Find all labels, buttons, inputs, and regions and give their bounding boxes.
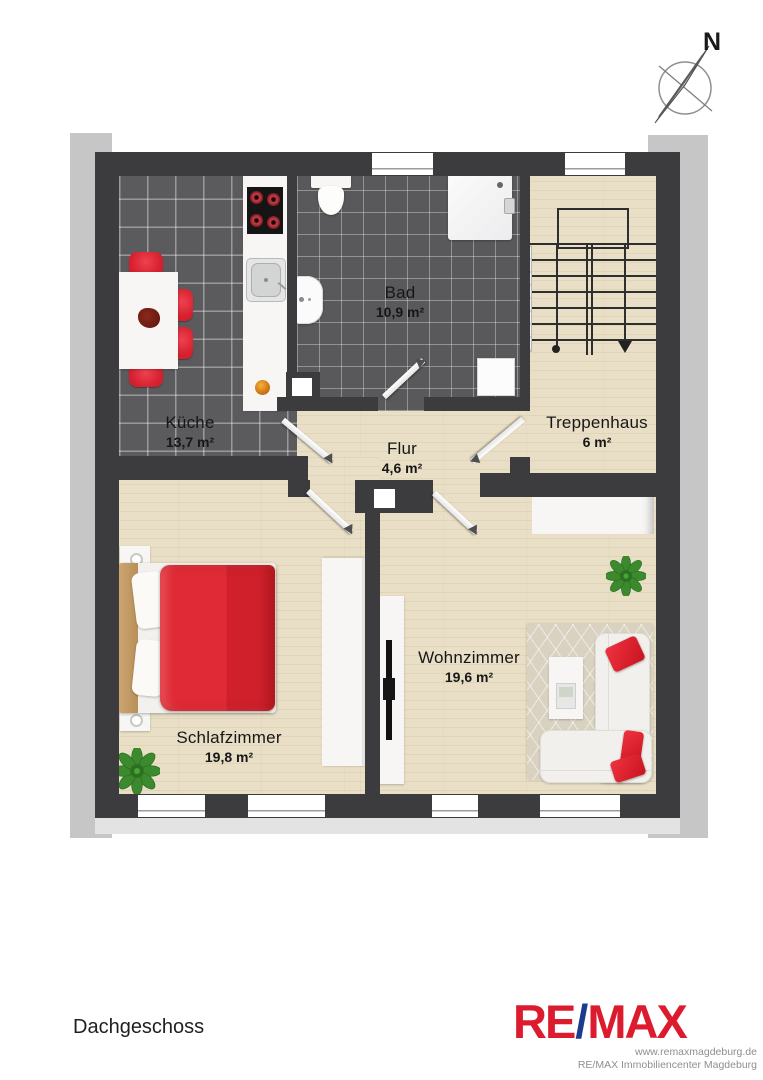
window-wohnzimmer-2 [540, 795, 620, 817]
room-label-bad: Bad10,9 m² [376, 283, 424, 320]
kitchen-bowl [255, 380, 270, 395]
wall-kueche-door-post [277, 457, 287, 480]
stairs-divider [586, 243, 593, 355]
compass-north-label: N [703, 28, 721, 56]
wall-treppenhaus-south [480, 473, 680, 497]
stairs-walkline [556, 243, 558, 349]
washbasin [296, 276, 323, 324]
kitchen-counter [243, 176, 287, 411]
window-schlafzimmer-1 [138, 795, 205, 817]
wall-bad-treppenhaus [520, 152, 530, 411]
window-treppenhaus [565, 153, 625, 175]
room-label-flur: Flur4,6 m² [382, 439, 422, 476]
built-in-closet [532, 494, 654, 534]
roof-strip-bottom [95, 818, 680, 834]
cooktop [247, 187, 283, 234]
chimney-flur-cap [374, 489, 395, 508]
toilet [311, 175, 351, 217]
coffee-table [549, 657, 583, 719]
window-schlafzimmer-2 [248, 795, 325, 817]
room-label-treppenhaus: Treppenhaus6 m² [546, 413, 648, 450]
logo-re: RE [513, 995, 574, 1048]
logo-max: MAX [587, 995, 685, 1048]
wall-kueche-bad [287, 176, 297, 401]
kitchen-sink [246, 258, 286, 302]
shower [448, 174, 512, 240]
plant-icon [114, 748, 160, 794]
compass-icon: N [645, 26, 737, 130]
floorplan-page: N /* N text bound below via JS (svg text… [0, 0, 763, 1080]
plant-icon [606, 556, 646, 596]
room-label-schlafzimmer: Schlafzimmer19,8 m² [176, 728, 281, 765]
stairs [530, 243, 656, 355]
stairs-walkline-dot [552, 345, 560, 353]
footer-company: RE/MAX Immobiliencenter Magdeburg [578, 1059, 757, 1071]
room-label-kueche: Küche13,7 m² [165, 413, 214, 450]
room-label-wohnzimmer: Wohnzimmer19,6 m² [418, 648, 520, 685]
footer-website: www.remaxmagdeburg.de [635, 1046, 757, 1058]
wall-schlafzimmer-wohnzimmer [365, 513, 380, 794]
washing-machine [477, 358, 515, 396]
table-decor [138, 308, 160, 328]
stairs-walkline [624, 243, 626, 342]
floor-title: Dachgeschoss [73, 1016, 204, 1039]
wall-exterior-left [95, 152, 119, 818]
stairs-down-arrow-icon [618, 341, 632, 353]
window-bad [372, 153, 433, 175]
bed-duvet [160, 565, 275, 711]
dining-table [118, 272, 178, 369]
wall-bad-south-right [424, 397, 530, 411]
remax-logo: RE/MAX [513, 998, 686, 1045]
chimney-bad-cap [292, 378, 312, 396]
window-wohnzimmer-1 [432, 795, 478, 817]
wardrobe [322, 558, 365, 766]
logo-slash: / [574, 995, 587, 1048]
bed [118, 563, 276, 713]
